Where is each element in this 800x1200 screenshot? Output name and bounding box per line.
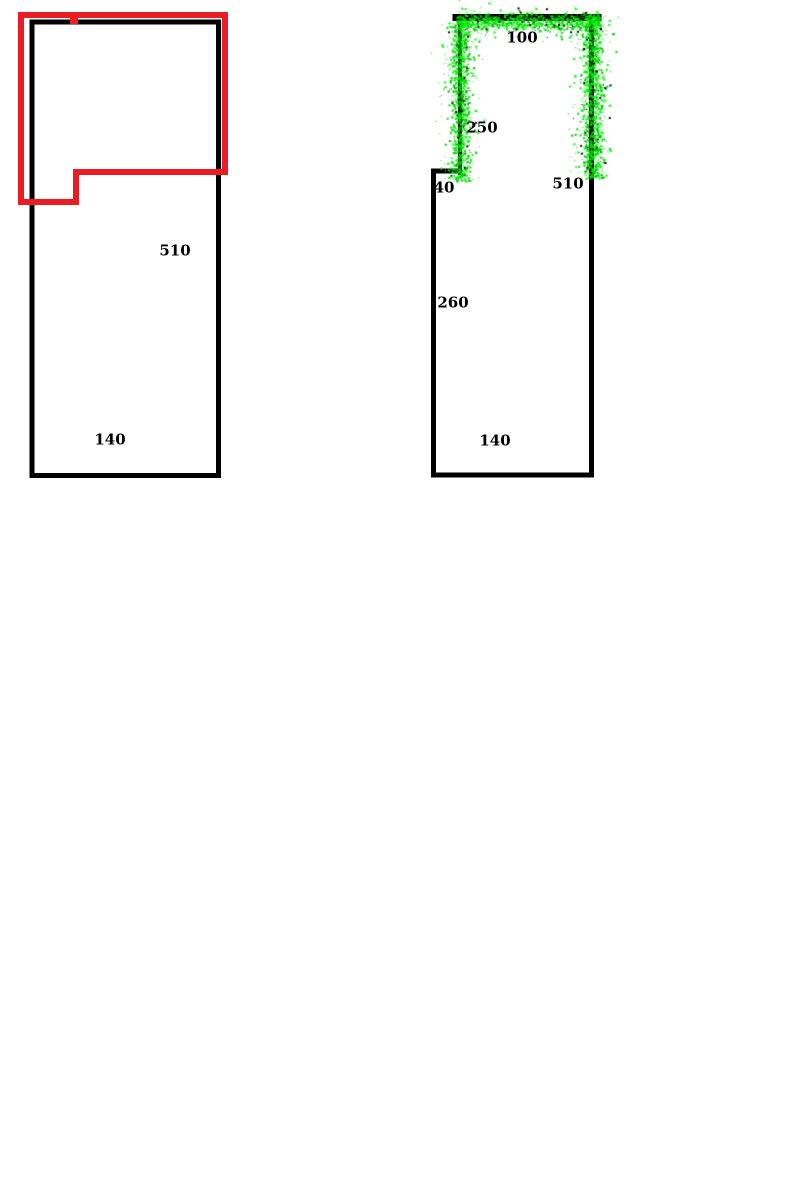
right-dim-label-100: 100 [506,31,537,46]
paint-canvas: 510 140 100 250 40 510 260 140 [0,0,800,1200]
left-dim-label-510: 510 [159,244,190,259]
right-dim-label-260: 260 [437,296,468,311]
left-dim-label-140: 140 [94,433,125,448]
right-dim-label-140: 140 [479,434,510,449]
dimension-labels: 510 140 100 250 40 510 260 140 [0,0,800,1200]
right-dim-label-40: 40 [434,181,455,196]
right-dim-label-250: 250 [466,121,497,136]
right-dim-label-510: 510 [552,177,583,192]
